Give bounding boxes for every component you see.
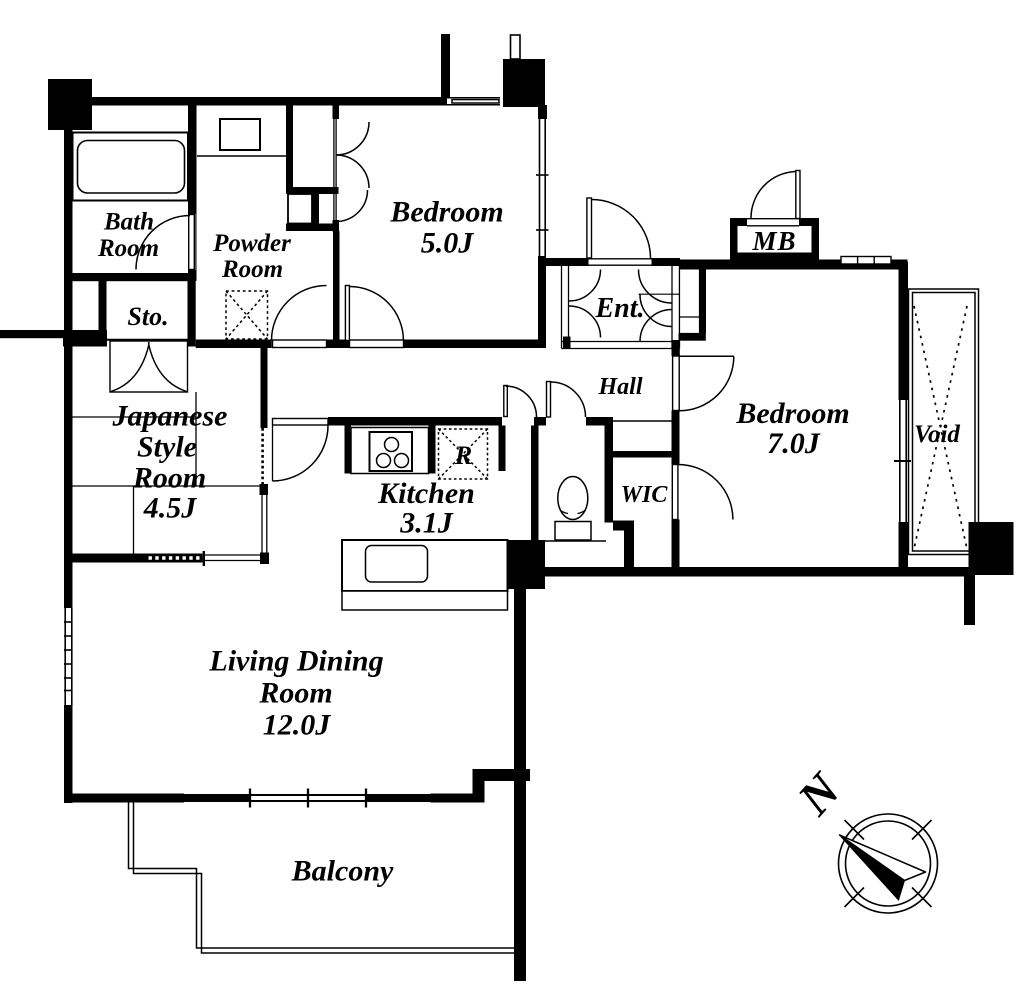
svg-text:Room: Room — [97, 235, 159, 262]
svg-text:Japanese: Japanese — [112, 400, 228, 433]
svg-text:Living Dining: Living Dining — [208, 645, 383, 678]
svg-text:Bath: Bath — [103, 209, 154, 236]
svg-text:R: R — [454, 441, 472, 470]
svg-text:Room: Room — [221, 256, 283, 283]
svg-text:5.0J: 5.0J — [421, 226, 475, 259]
svg-text:Ent.: Ent. — [594, 293, 644, 324]
svg-text:Sto.: Sto. — [127, 302, 168, 331]
svg-text:7.0J: 7.0J — [767, 427, 821, 460]
svg-text:Bedroom: Bedroom — [735, 397, 849, 430]
svg-text:Room: Room — [258, 677, 332, 710]
svg-text:Powder: Powder — [212, 230, 291, 257]
svg-text:Hall: Hall — [597, 374, 642, 400]
svg-text:Style: Style — [137, 431, 197, 464]
svg-text:4.5J: 4.5J — [143, 492, 198, 525]
svg-text:Kitchen: Kitchen — [377, 477, 475, 510]
svg-text:3.1J: 3.1J — [399, 507, 454, 540]
svg-text:12.0J: 12.0J — [263, 709, 332, 742]
svg-text:Void: Void — [914, 421, 960, 448]
svg-text:Bedroom: Bedroom — [389, 196, 503, 229]
svg-text:MB: MB — [751, 226, 796, 256]
svg-text:Room: Room — [132, 462, 206, 495]
svg-text:Balcony: Balcony — [291, 855, 394, 888]
svg-text:WIC: WIC — [621, 482, 669, 508]
